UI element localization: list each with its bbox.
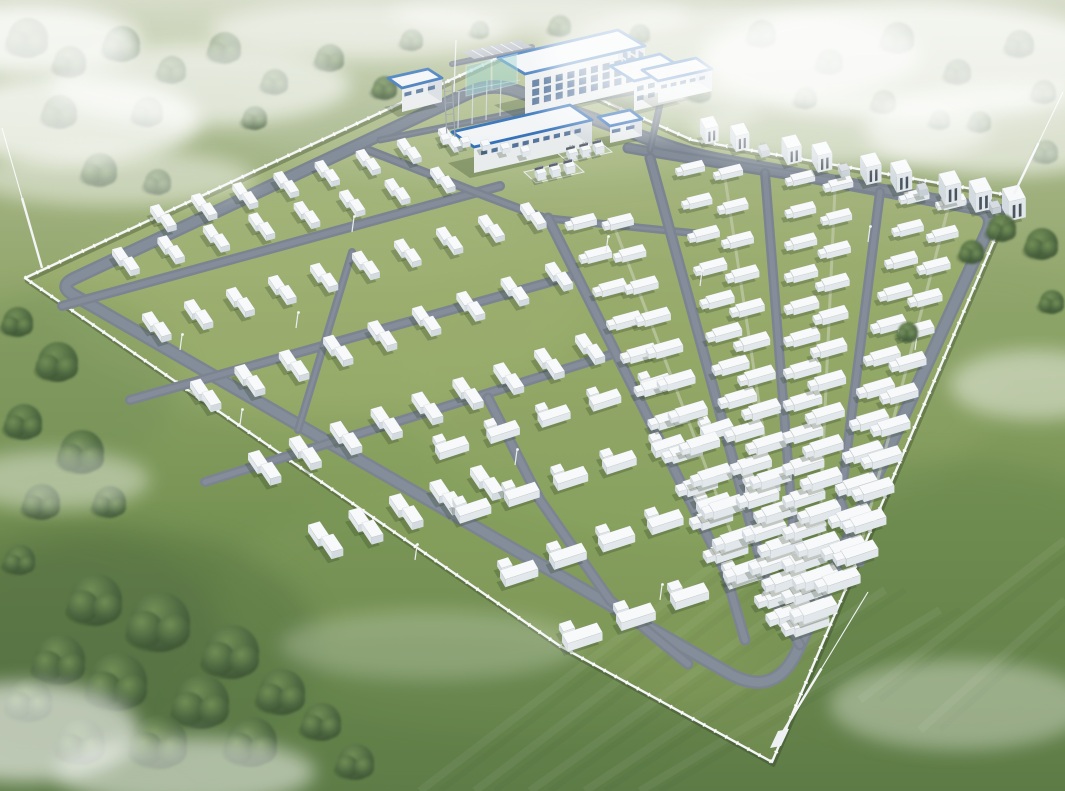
render-canvas: Aerial rendering of a battery energy sto… — [0, 0, 1065, 791]
light-veil — [0, 0, 1065, 791]
atmosphere-layer — [0, 0, 1065, 791]
aerial-site-render: Aerial rendering of a battery energy sto… — [0, 0, 1065, 791]
